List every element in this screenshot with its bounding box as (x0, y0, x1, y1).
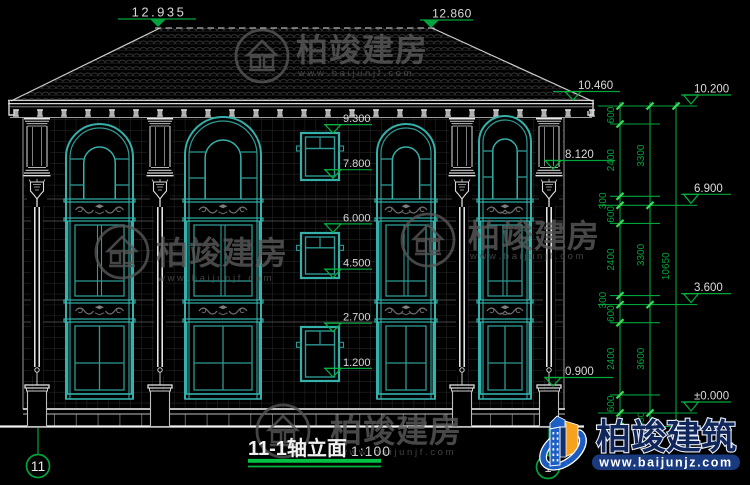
svg-text:w w w . b a i j u n j f . c o: w w w . b a i j u n j f . c o m (157, 273, 272, 284)
svg-text:柏竣建房: 柏竣建房 (156, 235, 288, 271)
svg-text:12.860: 12.860 (432, 7, 472, 21)
svg-text:w w w . b a i j u n j f . c o: w w w . b a i j u n j f . c o m (469, 251, 584, 262)
svg-text:2400: 2400 (606, 149, 617, 172)
svg-text:9.300: 9.300 (343, 113, 371, 125)
svg-text:6.000: 6.000 (343, 212, 371, 224)
svg-text:600: 600 (606, 106, 617, 123)
svg-text:1:100: 1:100 (351, 443, 391, 459)
svg-text:600: 600 (606, 395, 617, 412)
svg-text:柏竣建房: 柏竣建房 (330, 413, 462, 449)
svg-text:2.700: 2.700 (343, 312, 371, 324)
svg-text:6.900: 6.900 (694, 183, 723, 195)
svg-text:柏竣建房: 柏竣建房 (468, 218, 600, 254)
svg-text:11: 11 (31, 458, 46, 474)
svg-text:3300: 3300 (636, 243, 647, 266)
svg-text:3300: 3300 (636, 144, 647, 167)
svg-text:8.120: 8.120 (565, 149, 594, 161)
svg-text:7.800: 7.800 (343, 158, 371, 170)
svg-text:10.460: 10.460 (578, 80, 613, 92)
svg-text:600: 600 (606, 305, 617, 322)
svg-text:0.900: 0.900 (565, 366, 594, 378)
svg-text:2400: 2400 (606, 347, 617, 370)
svg-text:3600: 3600 (636, 347, 647, 370)
svg-text:4.500: 4.500 (343, 258, 371, 270)
svg-text:1.200: 1.200 (343, 357, 371, 369)
svg-text:www.baijunjz.com: www.baijunjz.com (598, 456, 732, 470)
svg-text:12.935: 12.935 (132, 5, 187, 20)
svg-text:10650: 10650 (661, 252, 672, 280)
svg-text:600: 600 (606, 206, 617, 223)
svg-text:3.600: 3.600 (694, 282, 723, 294)
svg-text:w w w . b a i j u n j f . c o: w w w . b a i j u n j f . c o m (297, 68, 412, 79)
svg-text:11-1轴立面: 11-1轴立面 (248, 436, 347, 460)
svg-text:柏竣建房: 柏竣建房 (296, 32, 428, 68)
svg-text:10.200: 10.200 (694, 84, 729, 96)
svg-text:2400: 2400 (606, 248, 617, 271)
svg-text:柏竣建筑: 柏竣建筑 (596, 417, 736, 457)
svg-text:±0.000: ±0.000 (694, 391, 729, 403)
